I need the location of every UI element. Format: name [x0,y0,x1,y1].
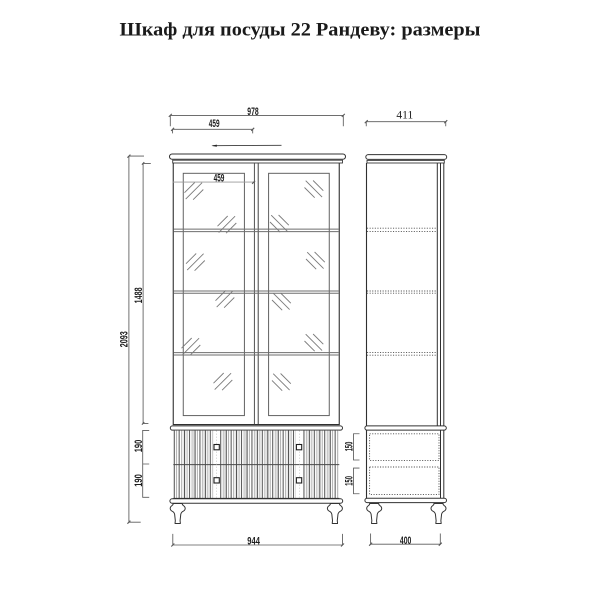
svg-text:190: 190 [133,440,145,453]
svg-text:190: 190 [133,474,145,487]
svg-text:150: 150 [344,476,356,486]
svg-text:400: 400 [400,535,411,547]
svg-text:944: 944 [247,536,260,548]
svg-text:411: 411 [396,110,413,122]
svg-text:2093: 2093 [119,331,131,347]
svg-text:459: 459 [209,118,220,130]
svg-text:150: 150 [344,442,356,452]
svg-text:978: 978 [247,106,258,118]
svg-text:1488: 1488 [133,287,145,303]
svg-text:Шкаф для посуды 22 Рандеву: ра: Шкаф для посуды 22 Рандеву: размеры [120,20,481,41]
svg-text:459: 459 [214,172,225,184]
